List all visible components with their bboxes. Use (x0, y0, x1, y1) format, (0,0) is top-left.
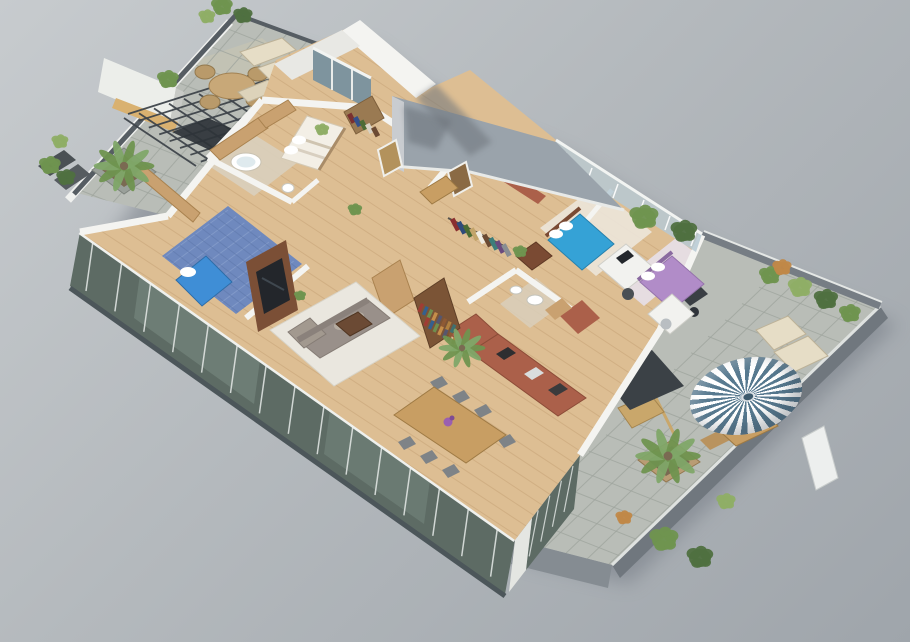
pillow (641, 272, 655, 281)
plant-tuft (782, 268, 790, 275)
pillow (292, 136, 306, 145)
render-canvas (0, 0, 910, 642)
plant-tuft (222, 7, 231, 14)
tile-line (796, 375, 910, 642)
plant-tuft (696, 546, 707, 555)
plant-tuft (322, 130, 328, 135)
plant-tuft (770, 276, 779, 283)
pillow (180, 267, 196, 277)
pillow (284, 146, 298, 155)
plant-tuft (726, 502, 734, 509)
bathtub-water (237, 157, 256, 168)
plant-tuft (298, 290, 303, 294)
plant-tuft (664, 540, 676, 550)
plant (716, 493, 735, 509)
plant-tuft (520, 252, 526, 257)
bistro-chair (200, 95, 220, 109)
washbasin (527, 295, 543, 305)
plant-tuft (46, 156, 55, 163)
plant-tuft (60, 142, 67, 148)
pillow (559, 222, 573, 231)
desk-chair (661, 319, 672, 330)
plant-tuft (639, 205, 651, 215)
desk-chair (622, 288, 634, 300)
bistro-chair (195, 65, 215, 79)
plant-tuft (66, 178, 74, 185)
plant-tuft (800, 288, 810, 296)
floorplan-render (0, 0, 910, 642)
pillow (651, 263, 665, 272)
plant-tuft (207, 17, 214, 23)
plant-tuft (300, 296, 305, 300)
tile-line (853, 398, 910, 642)
plant-tuft (243, 16, 251, 23)
plant-tuft (723, 493, 731, 500)
palm-crown (120, 162, 128, 170)
plant-tuft (684, 232, 695, 241)
plant-tuft (779, 259, 787, 266)
plant-tuft (850, 314, 859, 321)
plant-tuft (624, 518, 631, 524)
plant-tuft (63, 169, 71, 176)
plant-tuft (621, 510, 628, 516)
plant-tuft (204, 9, 211, 15)
plant-tuft (822, 289, 832, 297)
plant-tuft (57, 134, 64, 140)
tile-line (834, 390, 910, 642)
plant-tuft (353, 203, 359, 208)
palm-crown (664, 452, 673, 461)
plant-tuft (240, 7, 248, 14)
garden-bench (802, 426, 838, 490)
plant-tuft (846, 304, 855, 311)
toilet (510, 286, 522, 294)
tile-line (815, 383, 910, 642)
plant (51, 134, 68, 148)
plant-tuft (518, 245, 524, 250)
plant-tuft (796, 277, 806, 285)
parasol-cap (740, 391, 756, 403)
plant-tuft (320, 123, 326, 128)
plant-tuft (164, 70, 173, 77)
palm-crown (459, 345, 465, 351)
plant-tuft (680, 220, 691, 229)
plant (687, 546, 714, 568)
plant-tuft (659, 527, 671, 537)
plant-tuft (644, 218, 656, 228)
plant-tuft (826, 300, 836, 308)
plant-tuft (700, 558, 711, 567)
plant (198, 9, 215, 23)
tile-line (470, 566, 880, 642)
flower-vase (450, 416, 455, 421)
pillow (549, 230, 563, 239)
plant-tuft (355, 210, 361, 215)
plant-tuft (168, 80, 177, 87)
toilet (282, 184, 294, 193)
tile-line (872, 406, 910, 642)
